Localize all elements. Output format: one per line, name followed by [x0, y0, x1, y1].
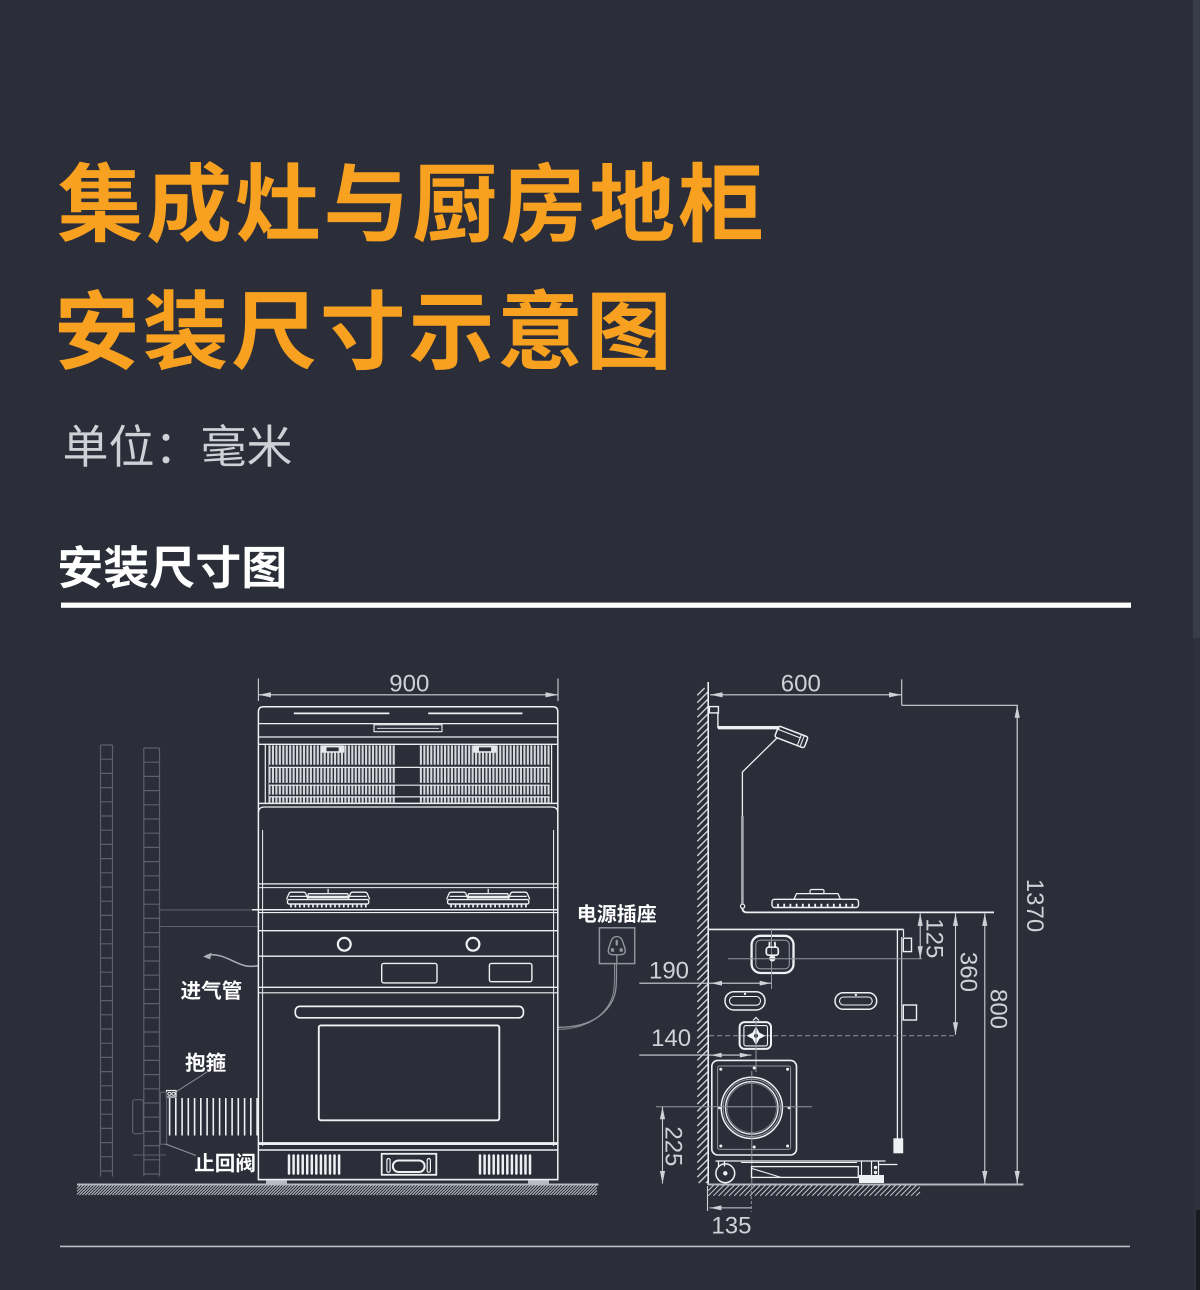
svg-text:360: 360	[954, 952, 981, 992]
svg-text:1370: 1370	[1021, 879, 1048, 932]
svg-text:140: 140	[651, 1025, 691, 1052]
svg-text:800: 800	[985, 989, 1012, 1029]
svg-text:900: 900	[389, 670, 429, 697]
svg-text:225: 225	[659, 1126, 686, 1166]
svg-text:125: 125	[921, 918, 948, 958]
svg-text:600: 600	[781, 671, 821, 698]
svg-text:135: 135	[711, 1213, 751, 1240]
svg-text:190: 190	[649, 958, 689, 985]
